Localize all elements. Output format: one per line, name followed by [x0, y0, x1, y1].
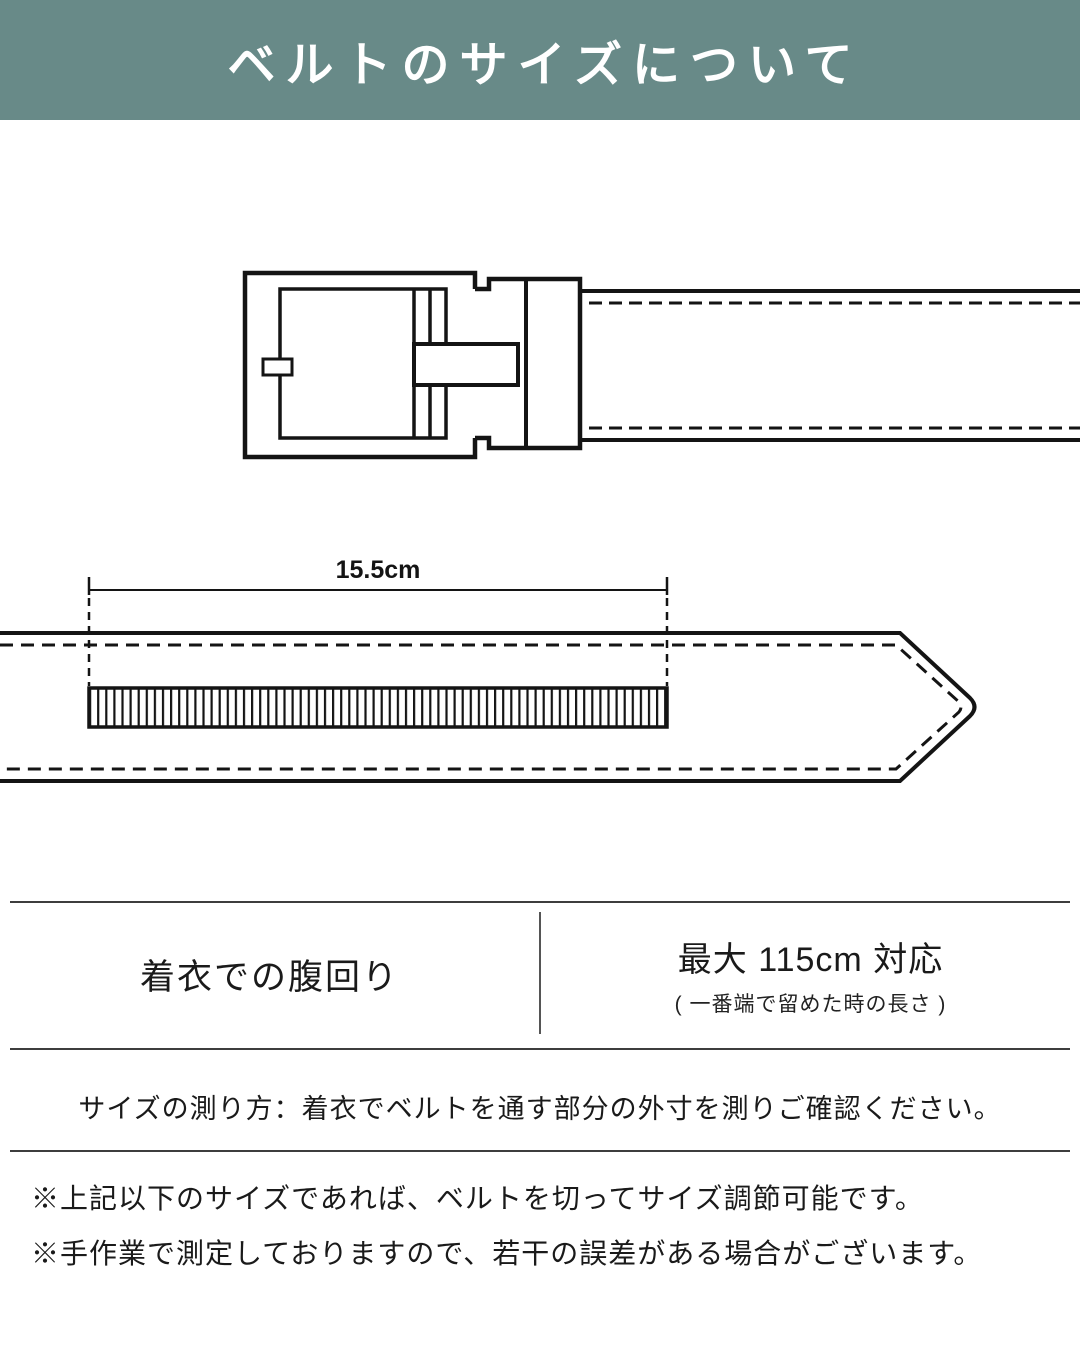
notes-top-rule [10, 1150, 1070, 1152]
notes-section: ※上記以下のサイズであれば、ベルトを切ってサイズ調節可能です。 ※手作業で測定し… [31, 1185, 1051, 1288]
size-table-label-cell: 着衣での腹回り [0, 903, 539, 1046]
hole-punch-area [89, 688, 667, 727]
buckle-pin-tab [263, 359, 292, 375]
belt-buckle-diagram [245, 273, 1080, 457]
size-table-value-cell: 最大 115cm 対応 ( 一番端で留めた時の長さ ) [541, 903, 1080, 1046]
belt-tip-diagram: 15.5cm [0, 556, 975, 781]
table-bottom-rule [10, 1048, 1070, 1050]
note-item-1: ※上記以下のサイズであれば、ベルトを切ってサイズ調節可能です。 [31, 1185, 1051, 1213]
length-dimension-label: 15.5cm [336, 556, 421, 584]
belt-diagrams: 15.5cm [0, 0, 1080, 1350]
page: ベルトのサイズについて 15.5cm [0, 0, 1080, 1350]
buckle-prong [414, 344, 518, 385]
measure-instruction: サイズの測り方：着衣でベルトを通す部分の外寸を測りご確認ください。 [0, 1087, 1080, 1126]
max-size-value: 最大 115cm 対応 [678, 932, 943, 981]
max-size-note: ( 一番端で留めた時の長さ ) [675, 988, 947, 1018]
note-item-2: ※手作業で測定しておりますので、若干の誤差がある場合がございます。 [31, 1240, 1051, 1268]
waist-measure-label: 着衣での腹回り [140, 949, 399, 1000]
